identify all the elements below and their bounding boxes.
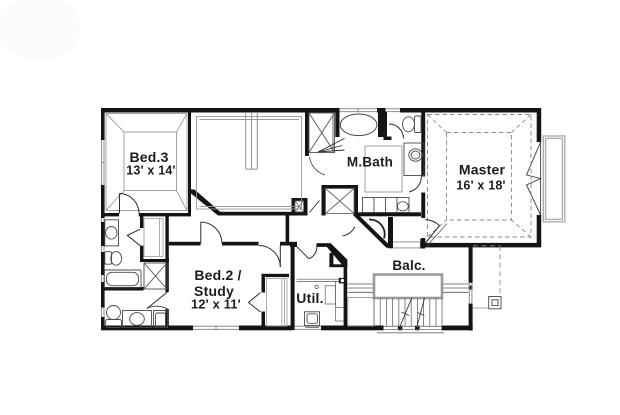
svg-text:Bed.2 /: Bed.2 / (194, 267, 241, 283)
svg-text:16' x 18': 16' x 18' (456, 179, 505, 193)
svg-text:13' x 14': 13' x 14' (126, 164, 175, 178)
svg-text:Util.: Util. (296, 290, 323, 306)
svg-text:Balc.: Balc. (392, 258, 425, 273)
svg-text:12' x 11': 12' x 11' (191, 297, 241, 312)
svg-text:M.Bath: M.Bath (347, 155, 393, 170)
svg-text:Master: Master (459, 162, 506, 178)
